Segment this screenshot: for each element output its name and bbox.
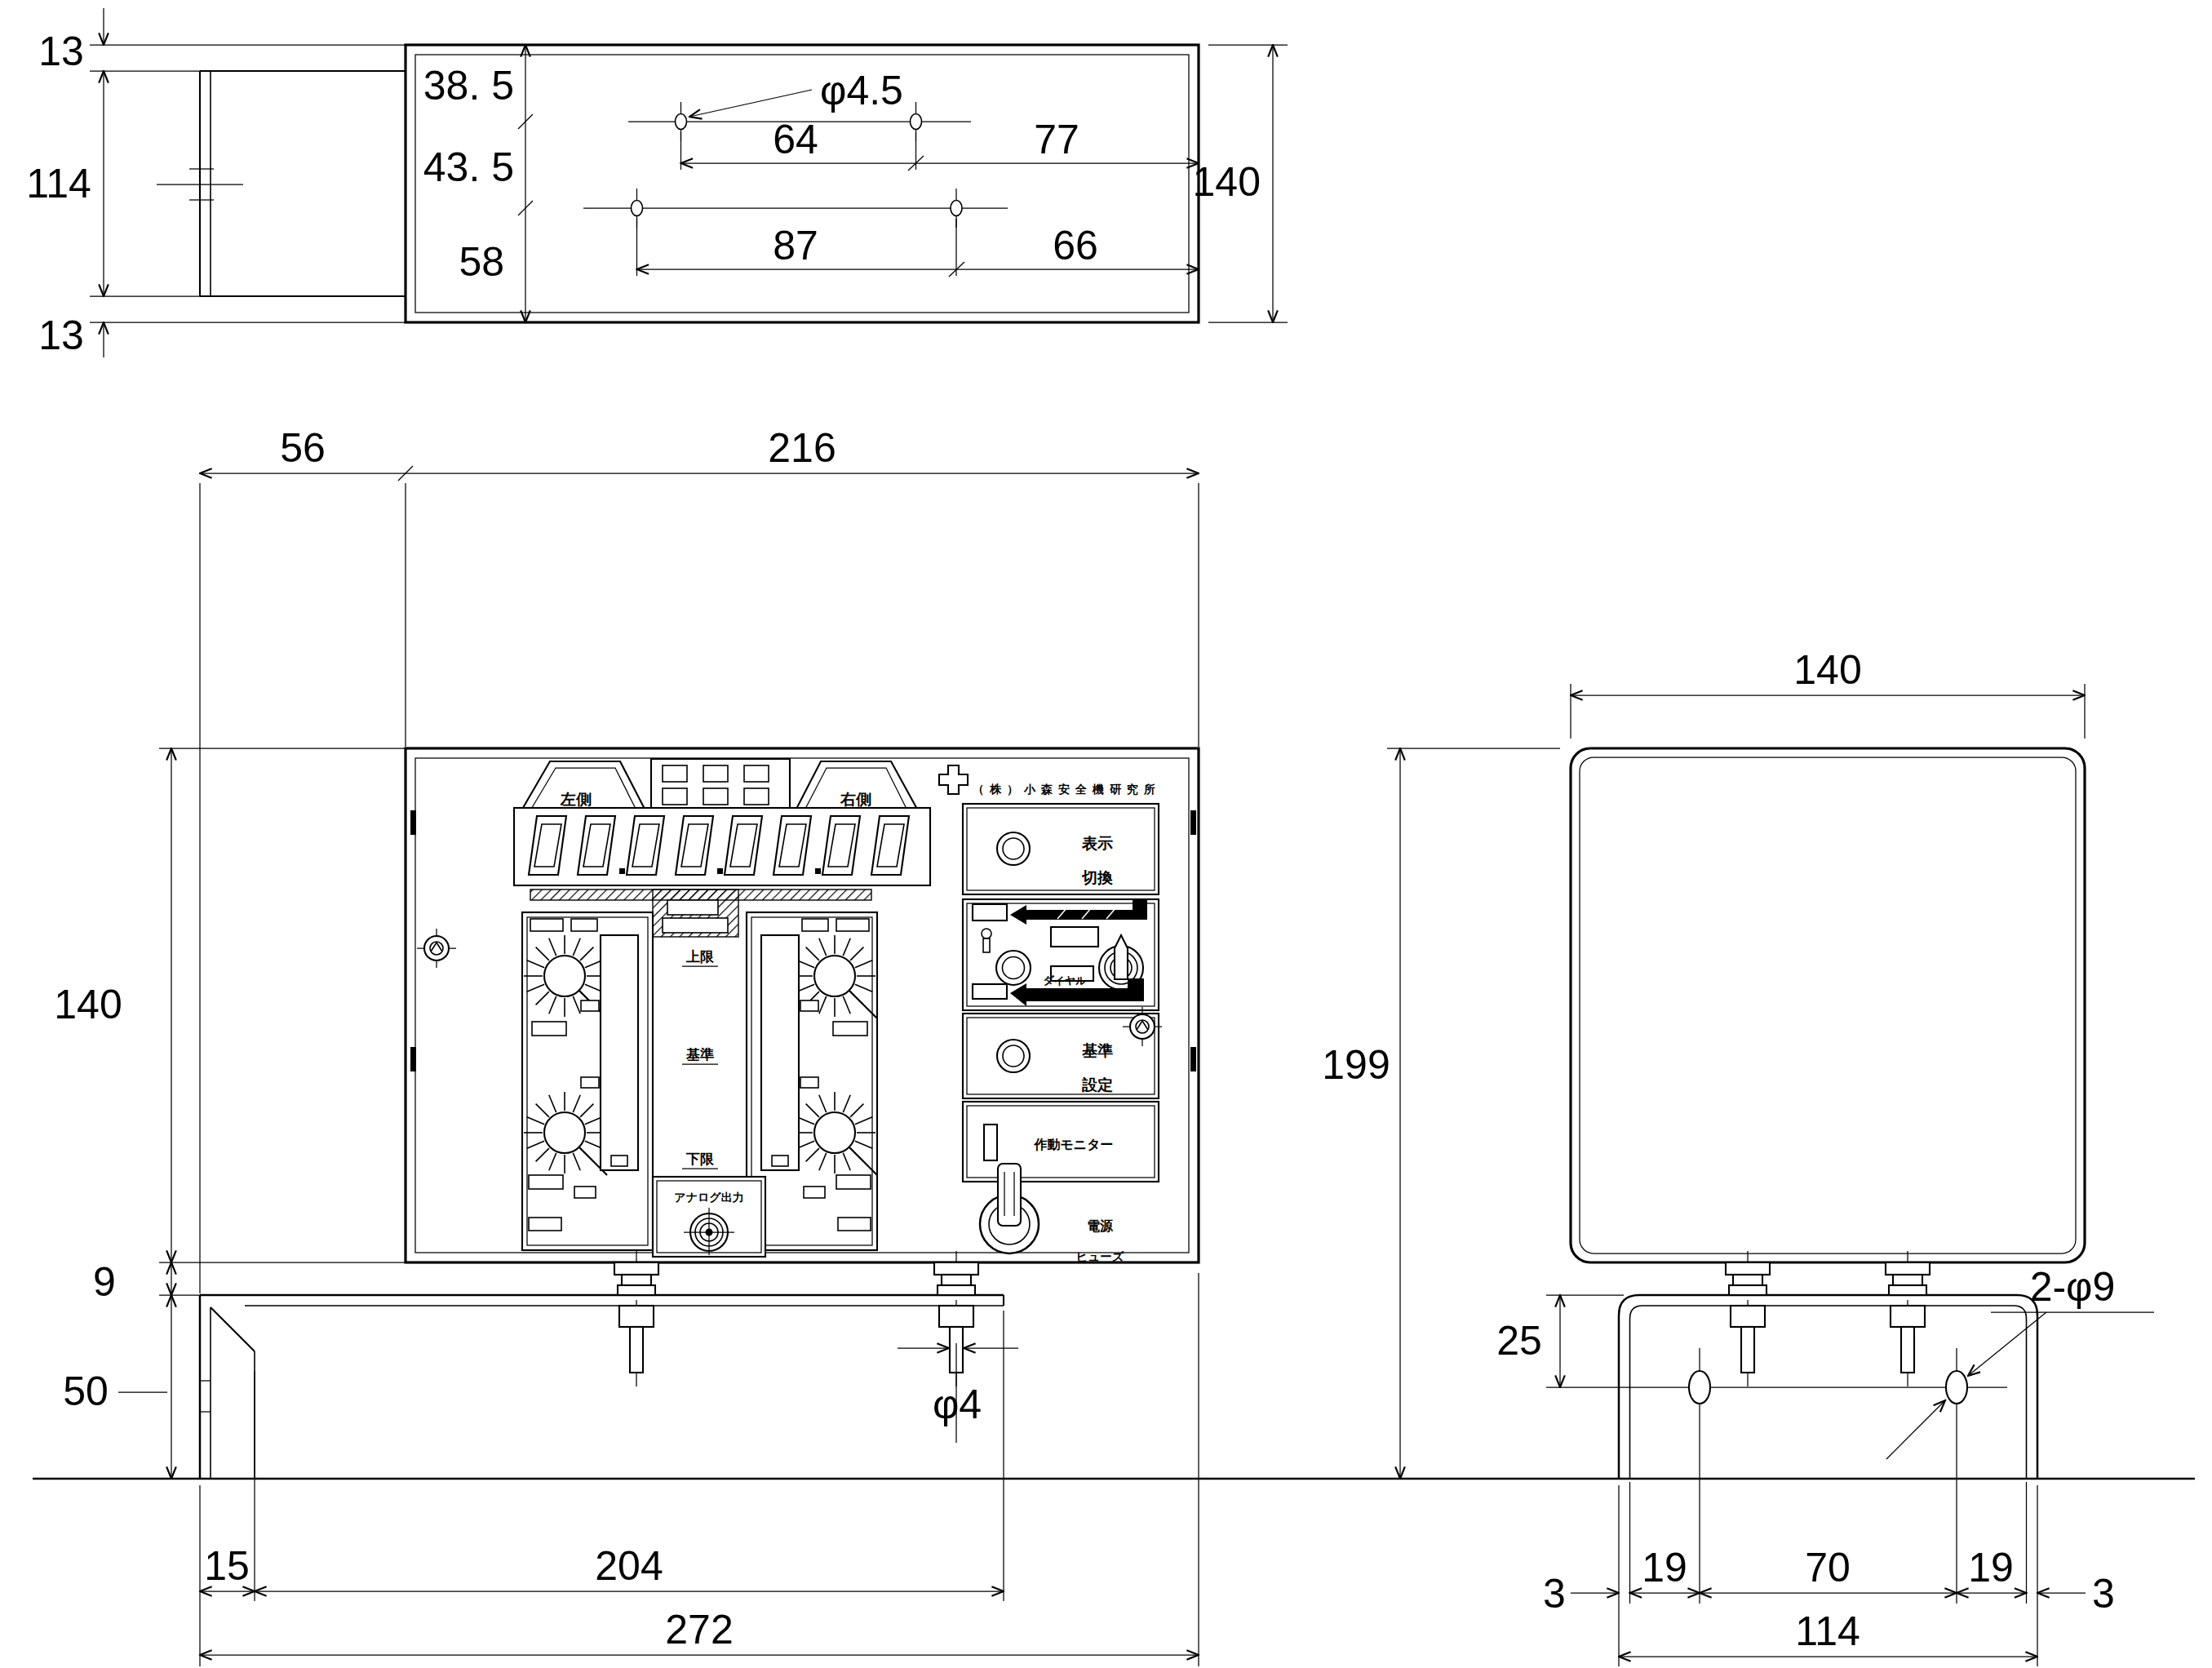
vent-block bbox=[651, 759, 790, 812]
dim-front-left: 140 9 50 bbox=[54, 748, 415, 1479]
dim-label-front-140: 140 bbox=[54, 982, 122, 1027]
display-label-left: 左側 bbox=[560, 791, 592, 808]
maker-name: （株）小森安全機研究所 bbox=[973, 783, 1161, 796]
dim-label-19-left: 19 bbox=[1642, 1545, 1687, 1590]
slider-slot[interactable] bbox=[601, 935, 638, 1170]
dim-label-9: 9 bbox=[93, 1259, 116, 1305]
display-switch-button[interactable] bbox=[997, 832, 1030, 865]
dim-label-56: 56 bbox=[280, 425, 326, 471]
dimension-drawing: 13 114 13 38. 5 43. 5 58 64 77 87 66 14 bbox=[0, 0, 2212, 1668]
hole-top-right bbox=[911, 114, 922, 130]
analog-output-box: アナログ出力 bbox=[653, 1177, 765, 1257]
dim-label-70: 70 bbox=[1805, 1545, 1851, 1590]
dim-top-depth: 13 114 13 bbox=[26, 8, 406, 358]
display-label-right: 右側 bbox=[840, 791, 871, 808]
dim-label-38-5: 38. 5 bbox=[423, 63, 514, 109]
callout-label-phi4-5: φ4.5 bbox=[820, 68, 903, 113]
callout-label-phi4: φ4 bbox=[933, 1382, 982, 1427]
side-body bbox=[1571, 748, 2085, 1262]
label-analog-output: アナログ出力 bbox=[674, 1191, 743, 1204]
side-view: 140 199 25 2-φ9 3 19 70 19 3 114 bbox=[1322, 647, 2154, 1666]
side-bracket bbox=[1546, 1295, 2037, 1479]
mounting-bolt bbox=[1886, 1251, 1930, 1386]
dim-label-19-right: 19 bbox=[1968, 1545, 2014, 1590]
dim-label-13-bottom: 13 bbox=[38, 313, 84, 358]
dim-label-66: 66 bbox=[1053, 223, 1098, 268]
dim-label-43-5: 43. 5 bbox=[423, 144, 514, 190]
callout-label-2-phi9: 2-φ9 bbox=[2030, 1264, 2116, 1310]
operation-monitor-box: 作動モニター bbox=[963, 1102, 1159, 1182]
dim-label-3-left: 3 bbox=[1543, 1571, 1566, 1617]
dim-side-199: 199 bbox=[1322, 748, 1560, 1479]
front-bracket bbox=[200, 1295, 1004, 1479]
dim-label-25: 25 bbox=[1496, 1318, 1542, 1364]
label-reference: 基準 bbox=[685, 1047, 714, 1062]
label-lower-limit: 下限 bbox=[685, 1151, 715, 1167]
label-operation-monitor: 作動モニター bbox=[1033, 1138, 1113, 1151]
dim-label-side-140: 140 bbox=[1793, 647, 1861, 693]
label-reference-set1: 基準 bbox=[1082, 1042, 1113, 1059]
dim-label-50: 50 bbox=[63, 1369, 109, 1414]
dim-label-216: 216 bbox=[768, 425, 836, 471]
monitor-led bbox=[984, 1125, 997, 1160]
dim-label-272: 272 bbox=[665, 1607, 733, 1652]
dim-label-87: 87 bbox=[773, 223, 818, 268]
control-panel-left bbox=[522, 912, 653, 1250]
reference-set-button[interactable] bbox=[997, 1040, 1030, 1072]
dim-label-3-right: 3 bbox=[2092, 1571, 2115, 1617]
mounting-bolt bbox=[1726, 1251, 1770, 1386]
key-button[interactable] bbox=[996, 951, 1031, 985]
dim-label-15: 15 bbox=[204, 1543, 250, 1589]
label-fuse: ヒューズ bbox=[1075, 1250, 1124, 1263]
dim-label-58: 58 bbox=[459, 239, 504, 285]
dim-label-13-top: 13 bbox=[38, 29, 84, 74]
dim-label-top-140: 140 bbox=[1193, 159, 1261, 205]
label-switch: 切換 bbox=[1081, 869, 1113, 886]
dim-label-side-114: 114 bbox=[1795, 1608, 1860, 1654]
hole-top-left bbox=[676, 114, 687, 130]
bracket-hole-right bbox=[1946, 1371, 1967, 1404]
dim-label-64: 64 bbox=[773, 117, 818, 162]
dim-label-199: 199 bbox=[1322, 1042, 1390, 1088]
dim-side-25: 25 bbox=[1496, 1295, 1624, 1387]
top-view: 13 114 13 38. 5 43. 5 58 64 77 87 66 14 bbox=[26, 8, 1288, 358]
label-display: 表示 bbox=[1081, 835, 1113, 852]
dim-label-114: 114 bbox=[26, 161, 91, 206]
dim-side-140: 140 bbox=[1571, 647, 2085, 739]
front-view: 左側 右側 bbox=[54, 425, 1199, 1666]
dim-side-bottom: 3 19 70 19 3 114 bbox=[1543, 1426, 2115, 1666]
display-switch-box: 表示 切換 bbox=[963, 804, 1159, 894]
dim-top-140: 140 bbox=[1193, 45, 1288, 322]
mounting-bolt bbox=[614, 1251, 658, 1386]
label-upper-limit: 上限 bbox=[685, 949, 715, 965]
bracket-hole-left bbox=[1689, 1371, 1710, 1404]
top-view-body bbox=[406, 45, 1199, 322]
top-view-bracket-plate bbox=[157, 71, 406, 296]
key-switch-box: ダイヤル bbox=[963, 899, 1159, 1010]
dim-label-77: 77 bbox=[1034, 117, 1079, 162]
slider-slot[interactable] bbox=[761, 935, 799, 1170]
label-reference-set2: 設定 bbox=[1081, 1076, 1113, 1094]
drawing-sheet: 13 114 13 38. 5 43. 5 58 64 77 87 66 14 bbox=[0, 0, 2212, 1668]
dim-label-204: 204 bbox=[595, 1543, 663, 1589]
label-power: 電源 bbox=[1087, 1219, 1114, 1233]
dim-front-bottom: 15 204 272 bbox=[200, 1273, 1199, 1666]
hole-bottom-left bbox=[632, 201, 643, 216]
label-dial: ダイヤル bbox=[1043, 974, 1087, 987]
hole-bottom-right bbox=[951, 201, 962, 216]
